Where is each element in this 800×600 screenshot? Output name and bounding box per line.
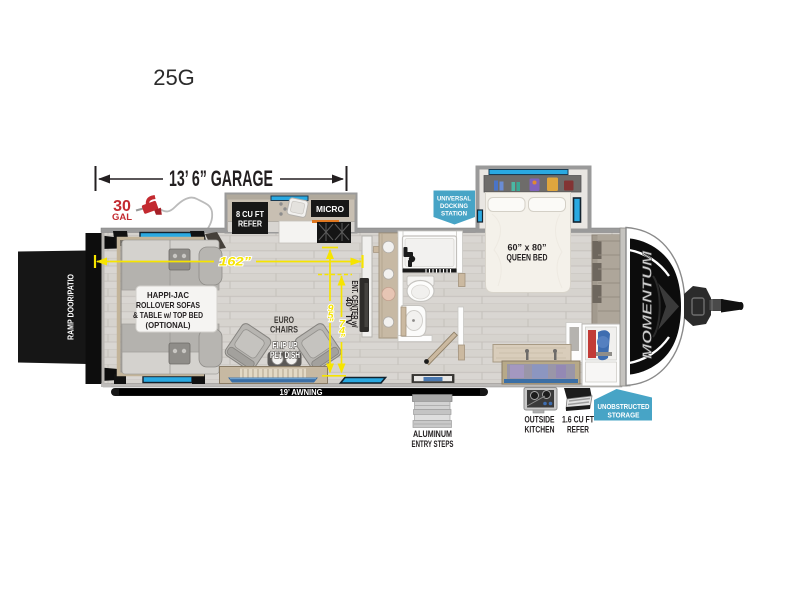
svg-text:UNIVERSAL: UNIVERSAL bbox=[437, 196, 471, 203]
svg-text:(OPTIONAL): (OPTIONAL) bbox=[146, 320, 191, 330]
svg-text:QUEEN BED: QUEEN BED bbox=[507, 253, 548, 263]
svg-text:EURO: EURO bbox=[274, 315, 294, 325]
svg-text:KITCHEN: KITCHEN bbox=[525, 425, 555, 435]
svg-text:RAMP DOOR/PATIO: RAMP DOOR/PATIO bbox=[66, 274, 76, 340]
svg-text:60” x 80”: 60” x 80” bbox=[508, 243, 547, 253]
svg-text:GAL: GAL bbox=[112, 212, 132, 223]
svg-text:8 CU FT: 8 CU FT bbox=[236, 209, 265, 219]
svg-text:ROLLOVER SOFAS: ROLLOVER SOFAS bbox=[136, 300, 200, 310]
svg-text:19’ AWNING: 19’ AWNING bbox=[280, 387, 323, 397]
svg-text:MOMENTUM: MOMENTUM bbox=[641, 250, 655, 359]
svg-text:REFER: REFER bbox=[567, 425, 589, 435]
svg-text:13’ 6” GARAGE: 13’ 6” GARAGE bbox=[169, 166, 273, 191]
svg-text:& TABLE w/ TOP BED: & TABLE w/ TOP BED bbox=[133, 310, 203, 320]
svg-text:MICRO: MICRO bbox=[316, 205, 344, 214]
svg-text:FLIP UP: FLIP UP bbox=[273, 341, 298, 351]
svg-text:”: ” bbox=[340, 332, 346, 344]
svg-text:HAPPI-JAC: HAPPI-JAC bbox=[147, 290, 189, 300]
svg-text:”: ” bbox=[328, 317, 334, 329]
svg-text:CHAIRS: CHAIRS bbox=[270, 325, 298, 335]
svg-text:162”: 162” bbox=[219, 255, 251, 269]
svg-text:STATION: STATION bbox=[441, 211, 467, 218]
svg-text:ALUMINUM: ALUMINUM bbox=[413, 429, 452, 439]
svg-text:REFER: REFER bbox=[238, 219, 262, 229]
svg-text:ENTRY STEPS: ENTRY STEPS bbox=[412, 439, 454, 449]
svg-text:DOCKING: DOCKING bbox=[440, 203, 468, 210]
svg-text:STORAGE: STORAGE bbox=[608, 411, 640, 420]
svg-text:PET DISH: PET DISH bbox=[270, 350, 300, 360]
svg-text:OUTSIDE: OUTSIDE bbox=[525, 415, 555, 425]
svg-text:1.6 CU FT: 1.6 CU FT bbox=[562, 415, 594, 425]
svg-text:25G: 25G bbox=[153, 65, 195, 90]
svg-text:40” TV: 40” TV bbox=[344, 297, 354, 325]
